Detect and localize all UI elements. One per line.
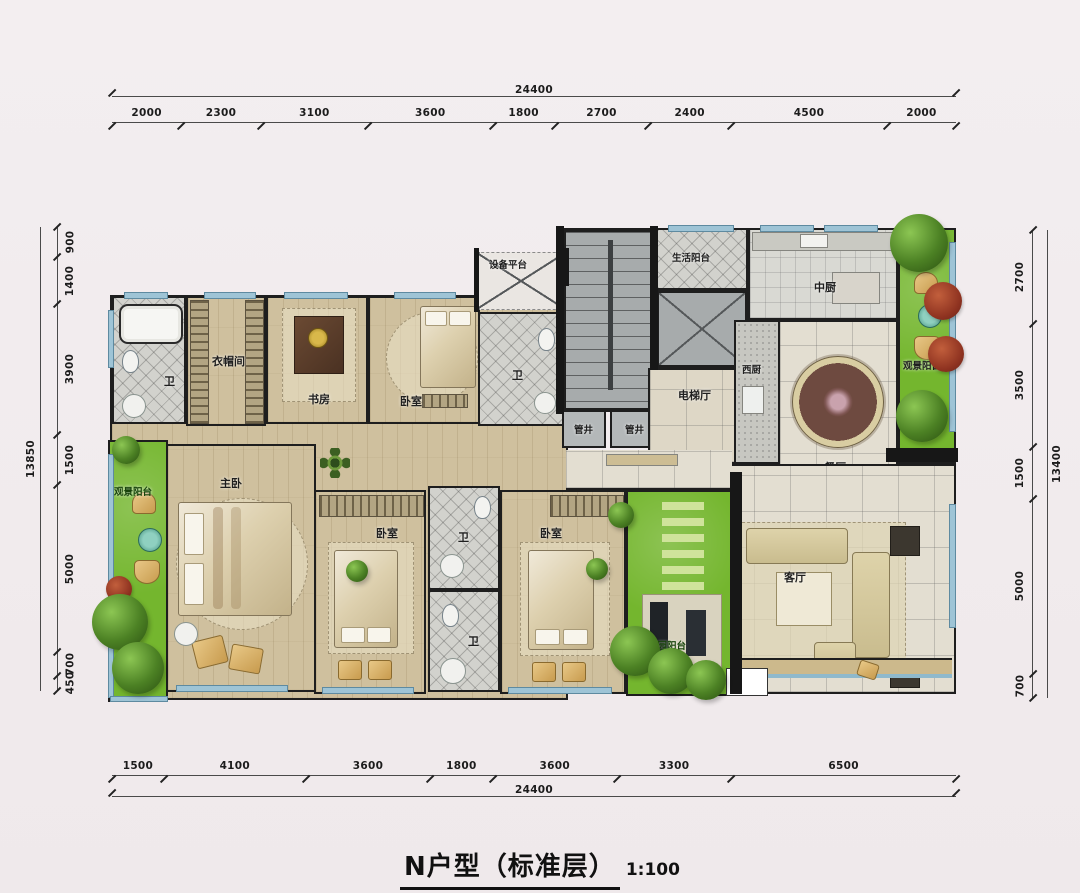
dim-seg: 2000 bbox=[112, 107, 181, 123]
room-label-pipe-1: 管井 bbox=[574, 426, 593, 436]
console-table bbox=[606, 454, 678, 466]
armchair bbox=[228, 643, 264, 674]
dim-seg: 3600 bbox=[493, 760, 618, 776]
room-service-balcony: 生活阳台 bbox=[656, 228, 748, 290]
west-kitchen-sink bbox=[742, 386, 764, 414]
window bbox=[668, 225, 734, 232]
sofa-right bbox=[852, 552, 890, 658]
room-label-bath-3: 卫 bbox=[458, 532, 469, 543]
bathtub bbox=[119, 304, 183, 344]
room-chinese-kitchen: 中厨 bbox=[748, 228, 898, 320]
room-label-bath-1: 卫 bbox=[164, 376, 175, 387]
window bbox=[508, 687, 612, 694]
room-label-master: 主卧 bbox=[220, 478, 242, 489]
kitchen-sink bbox=[800, 234, 828, 248]
bed bbox=[528, 550, 594, 650]
dim-seg: 1800 bbox=[493, 107, 555, 123]
tree bbox=[346, 560, 368, 582]
window bbox=[760, 225, 814, 232]
dim-top-segments: 2000 2300 3100 3600 1800 2700 2400 4500 … bbox=[112, 107, 956, 123]
window bbox=[322, 687, 414, 694]
tree bbox=[896, 390, 948, 442]
window bbox=[824, 225, 878, 232]
dim-seg: 1500 bbox=[58, 435, 82, 485]
room-label-bath-4: 卫 bbox=[468, 636, 479, 647]
bed bbox=[420, 306, 476, 388]
dim-top-total-line bbox=[112, 96, 956, 97]
room-study: 书房 bbox=[266, 296, 368, 424]
room-bath-4: 卫 bbox=[428, 590, 500, 692]
balcony-chair bbox=[134, 560, 160, 584]
study-lamp bbox=[308, 328, 328, 348]
stool bbox=[562, 662, 586, 682]
dim-seg: 3900 bbox=[58, 304, 82, 435]
dim-bottom: 1500 4100 3600 1800 3600 3300 6500 24400 bbox=[112, 760, 956, 797]
room-bath-3: 卫 bbox=[428, 486, 500, 590]
dim-seg: 2700 bbox=[555, 107, 648, 123]
dim-seg: 5000 bbox=[58, 485, 82, 653]
side-table bbox=[890, 526, 920, 556]
room-label-bath-2: 卫 bbox=[512, 370, 523, 381]
dim-right-total: 13400 bbox=[1048, 230, 1066, 698]
room-label-service-balcony: 生活阳台 bbox=[672, 254, 710, 264]
room-bath-1: 卫 bbox=[112, 296, 186, 424]
dim-right-segments: 2700 3500 1500 5000 700 bbox=[1008, 230, 1033, 698]
dim-seg: 1500 bbox=[112, 760, 164, 776]
dim-seg: 2300 bbox=[181, 107, 261, 123]
stepping-stones bbox=[662, 502, 704, 590]
dim-seg: 2000 bbox=[887, 107, 956, 123]
toilet-icon bbox=[442, 604, 459, 627]
dim-right: 2700 3500 1500 5000 700 13400 bbox=[1008, 230, 1066, 698]
sofa-top bbox=[746, 528, 848, 564]
dim-seg: 6500 bbox=[731, 760, 956, 776]
hall-flower-decor bbox=[320, 448, 350, 478]
window bbox=[204, 292, 256, 299]
tree bbox=[890, 214, 948, 272]
tree bbox=[608, 502, 634, 528]
dim-left-segments: 900 1400 3900 1500 5000 700 450 bbox=[57, 227, 82, 691]
dim-seg: 1400 bbox=[58, 257, 82, 304]
armchair bbox=[191, 635, 229, 670]
room-label-bedroom-3: 卧室 bbox=[540, 528, 562, 539]
plan-scale-text: 1:100 bbox=[626, 860, 680, 880]
dim-seg: 2700 bbox=[1008, 230, 1032, 324]
red-shrub bbox=[924, 282, 962, 320]
dim-seg: 5000 bbox=[1008, 499, 1032, 674]
dim-top: 24400 2000 2300 3100 3600 1800 2700 2400… bbox=[112, 84, 956, 123]
room-label-west-kitchen: 西厨 bbox=[742, 366, 761, 376]
wall bbox=[650, 226, 658, 370]
sink-icon bbox=[440, 658, 466, 684]
bench bbox=[422, 394, 468, 408]
tree bbox=[112, 642, 164, 694]
room-bedroom-1: 卧室 bbox=[368, 296, 480, 424]
plan-title-text: N户型（标准层） bbox=[400, 852, 620, 890]
tree bbox=[112, 436, 140, 464]
window bbox=[108, 310, 114, 368]
room-west-kitchen: 西厨 bbox=[734, 320, 780, 464]
room-bedroom-3: 卧室 bbox=[500, 490, 626, 694]
toilet-icon bbox=[538, 328, 555, 351]
room-label-cloakroom: 衣帽间 bbox=[212, 356, 245, 367]
room-label-living: 客厅 bbox=[784, 572, 806, 583]
window bbox=[124, 292, 168, 299]
room-cloakroom: 衣帽间 bbox=[186, 296, 266, 426]
dim-seg: 1500 bbox=[1008, 447, 1032, 499]
sink-icon bbox=[440, 554, 464, 578]
dim-seg: 3600 bbox=[368, 107, 493, 123]
wall bbox=[474, 248, 479, 312]
balcony-table bbox=[138, 528, 162, 552]
window bbox=[949, 504, 956, 628]
wall bbox=[556, 226, 564, 414]
window bbox=[284, 292, 348, 299]
stool bbox=[338, 660, 362, 680]
stool bbox=[368, 660, 392, 680]
plan-title: N户型（标准层）1:100 bbox=[0, 846, 1080, 883]
room-label-view-balcony-left: 观景阳台 bbox=[114, 488, 152, 498]
tree bbox=[586, 558, 608, 580]
room-label-equipment: 设备平台 bbox=[489, 261, 527, 271]
dim-seg: 3500 bbox=[1008, 324, 1032, 446]
dim-seg: 900 bbox=[58, 227, 82, 257]
dim-left: 13850 900 1400 3900 1500 5000 700 450 bbox=[22, 227, 82, 691]
room-label-bedroom-2: 卧室 bbox=[376, 528, 398, 539]
dim-seg: 450 bbox=[58, 676, 82, 691]
wardrobe bbox=[245, 300, 264, 424]
gym-equipment bbox=[686, 610, 706, 656]
dim-seg: 2400 bbox=[648, 107, 731, 123]
dim-left-total-line bbox=[40, 227, 41, 691]
stairwell bbox=[562, 228, 658, 412]
room-label-pipe-2: 管井 bbox=[625, 426, 644, 436]
dim-bottom-total: 24400 bbox=[112, 784, 956, 796]
sink-icon bbox=[534, 392, 556, 414]
dim-seg: 4100 bbox=[164, 760, 306, 776]
dim-right-total-line bbox=[1047, 230, 1048, 698]
wall bbox=[564, 248, 569, 286]
dim-seg: 1800 bbox=[430, 760, 492, 776]
stool bbox=[532, 662, 556, 682]
room-label-elevator-hall: 电梯厅 bbox=[678, 390, 711, 401]
room-bedroom-2: 卧室 bbox=[314, 490, 426, 694]
room-living: 客厅 bbox=[716, 464, 956, 694]
room-bath-2: 卫 bbox=[478, 312, 566, 426]
window bbox=[176, 685, 288, 692]
side-table bbox=[174, 622, 198, 646]
room-master-bedroom: 主卧 bbox=[166, 444, 316, 692]
room-label-bedroom-1: 卧室 bbox=[400, 396, 422, 407]
toilet-icon bbox=[474, 496, 491, 519]
dim-seg: 3600 bbox=[306, 760, 431, 776]
wall bbox=[730, 472, 742, 694]
dining-table bbox=[792, 356, 884, 448]
wardrobe bbox=[190, 300, 209, 424]
dim-top-total: 24400 bbox=[112, 84, 956, 96]
wardrobe bbox=[319, 495, 424, 517]
sink-icon bbox=[122, 394, 146, 418]
dim-bottom-segments: 1500 4100 3600 1800 3600 3300 6500 bbox=[112, 760, 956, 776]
dim-seg: 700 bbox=[1008, 674, 1032, 698]
dim-seg: 3300 bbox=[617, 760, 731, 776]
kitchen-island bbox=[832, 272, 880, 304]
dim-left-total: 13850 bbox=[22, 227, 40, 691]
toilet-icon bbox=[122, 350, 139, 373]
window bbox=[394, 292, 456, 299]
dim-seg: 4500 bbox=[731, 107, 887, 123]
tree bbox=[686, 660, 726, 700]
floorplan-page: 24400 2000 2300 3100 3600 1800 2700 2400… bbox=[0, 0, 1080, 893]
room-equipment-platform: 设备平台 bbox=[476, 252, 566, 310]
room-label-chinese-kitchen: 中厨 bbox=[814, 282, 836, 293]
dim-bottom-total-line bbox=[112, 796, 956, 797]
stair-rail bbox=[608, 240, 613, 390]
master-bed bbox=[178, 502, 292, 616]
room-label-study: 书房 bbox=[308, 394, 330, 405]
window bbox=[110, 696, 168, 702]
floor-plan: 卫 衣帽间 书房 卧室 设备平台 bbox=[108, 222, 956, 702]
dim-seg: 3100 bbox=[261, 107, 368, 123]
red-shrub bbox=[928, 336, 964, 372]
room-pipe-shaft-1: 管井 bbox=[562, 410, 606, 448]
wall bbox=[886, 448, 958, 462]
entry-corridor bbox=[566, 450, 732, 490]
